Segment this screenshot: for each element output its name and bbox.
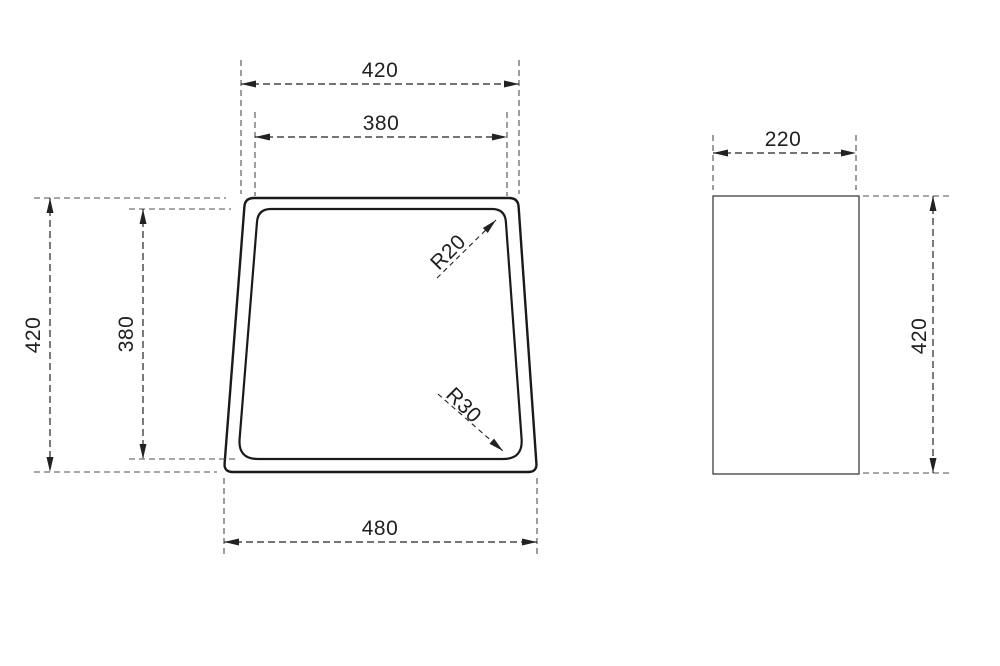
dimension-label-side-width: 220 [765, 128, 802, 151]
dimension-label-top-inner-width: 380 [363, 112, 400, 135]
drawing-svg: 420 380 420 380 480 R20 [0, 0, 1000, 666]
radius-label-r30: R30 [441, 383, 486, 428]
dimension-label-top-outer-width: 420 [362, 59, 399, 82]
dimension-label-left-outer-height: 420 [22, 317, 45, 354]
side-profile-outline [713, 196, 859, 474]
bowl-outer-outline [225, 198, 537, 472]
side-view: 220 420 [713, 128, 951, 474]
dimension-label-left-inner-height: 380 [115, 316, 138, 353]
radius-label-r20: R20 [426, 230, 471, 275]
technical-drawing-canvas: 420 380 420 380 480 R20 [0, 0, 1000, 666]
bowl-inner-outline [239, 209, 521, 459]
dimension-label-side-height: 420 [908, 318, 931, 355]
dimension-label-bottom-width: 480 [362, 517, 399, 540]
front-view: 420 380 420 380 480 R20 [22, 59, 537, 556]
